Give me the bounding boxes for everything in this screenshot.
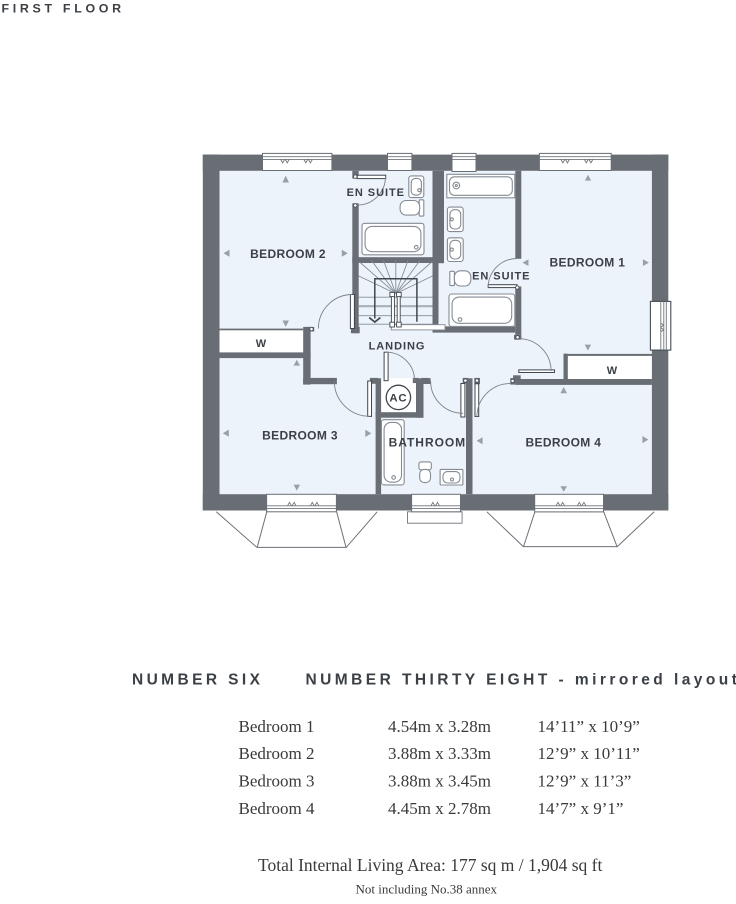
svg-text:EN SUITE: EN SUITE [472,271,530,283]
svg-text:4.54m x 3.28m: 4.54m x 3.28m [388,717,491,736]
svg-text:3.88m x 3.45m: 3.88m x 3.45m [388,772,491,791]
svg-text:BATHROOM: BATHROOM [389,435,467,449]
svg-text:BEDROOM 1: BEDROOM 1 [549,255,625,269]
svg-text:Bedroom 3: Bedroom 3 [239,772,315,791]
svg-text:BEDROOM 2: BEDROOM 2 [250,247,326,261]
svg-text:12’9” x 11’3”: 12’9” x 11’3” [538,772,632,791]
svg-text:14’7” x 9’1”: 14’7” x 9’1” [538,799,624,818]
svg-text:4.45m x 2.78m: 4.45m x 2.78m [388,799,491,818]
svg-text:EN SUITE: EN SUITE [347,187,405,199]
svg-text:Bedroom 2: Bedroom 2 [239,744,315,763]
svg-text:FIRST FLOOR: FIRST FLOOR [2,2,125,16]
svg-text:3.88m x 3.33m: 3.88m x 3.33m [388,744,491,763]
svg-text:AC: AC [389,393,407,405]
svg-text:NUMBER SIX: NUMBER SIX [132,672,263,689]
svg-text:W: W [607,365,618,377]
svg-text:BEDROOM 4: BEDROOM 4 [525,436,601,450]
svg-text:Bedroom 4: Bedroom 4 [239,799,316,818]
svg-text:Bedroom 1: Bedroom 1 [239,717,315,736]
svg-text:Not including No.38 annex: Not including No.38 annex [356,882,498,897]
svg-text:BEDROOM 3: BEDROOM 3 [262,428,338,442]
svg-text:14’11” x 10’9”: 14’11” x 10’9” [538,717,640,736]
svg-text:Total Internal Living Area: 17: Total Internal Living Area: 177 sq m / 1… [258,855,602,875]
svg-text:LANDING: LANDING [369,340,426,352]
svg-text:12’9” x 10’11”: 12’9” x 10’11” [538,744,640,763]
svg-text:NUMBER THIRTY EIGHT - mirrored: NUMBER THIRTY EIGHT - mirrored layout [306,672,736,689]
svg-text:W: W [256,338,267,350]
